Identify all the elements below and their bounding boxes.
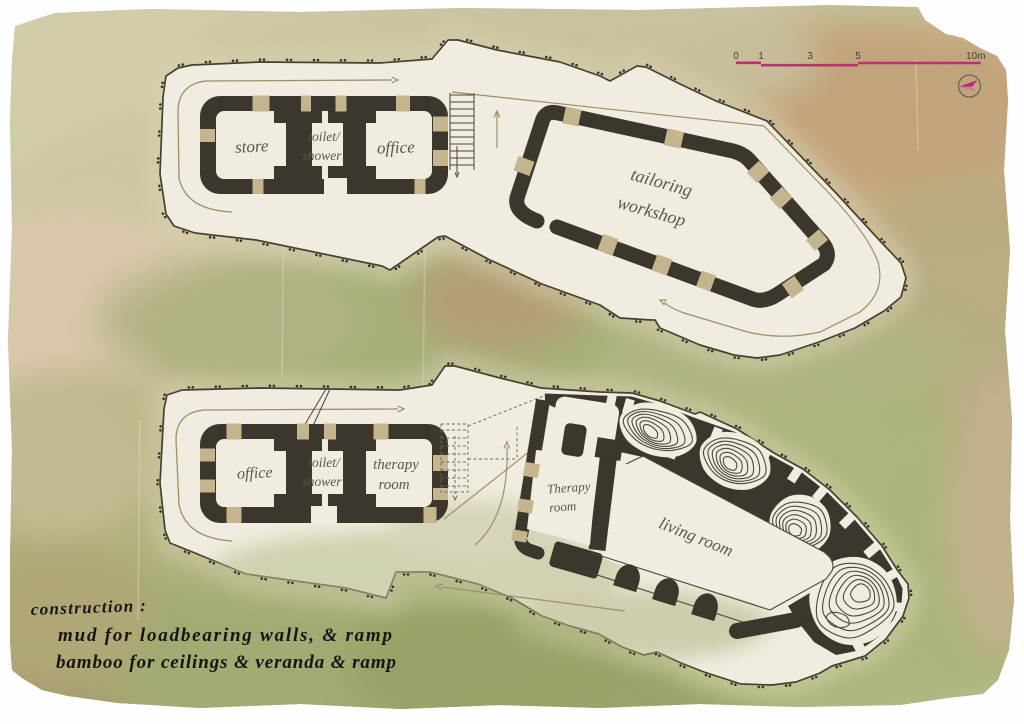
svg-text:toilet/: toilet/ <box>308 129 341 144</box>
svg-text:office: office <box>237 464 273 483</box>
svg-text:shower: shower <box>302 148 342 163</box>
svg-text:shower: shower <box>302 474 342 489</box>
svg-text:room: room <box>549 498 577 515</box>
svg-text:5: 5 <box>855 51 861 62</box>
svg-text:mud for loadbearing walls, & r: mud for loadbearing walls, & ramp <box>58 625 392 646</box>
svg-text:office: office <box>377 137 416 157</box>
svg-text:toilet/: toilet/ <box>308 455 341 470</box>
svg-text:bamboo for ceilings & veranda: bamboo for ceilings & veranda & ramp <box>56 652 396 673</box>
svg-text:1: 1 <box>758 51 764 62</box>
svg-text:Therapy: Therapy <box>547 479 591 497</box>
svg-text:room: room <box>378 477 409 493</box>
svg-text:3: 3 <box>807 51 813 62</box>
svg-text:therapy: therapy <box>373 457 419 473</box>
svg-text:store: store <box>235 136 270 157</box>
svg-text:construction :: construction : <box>30 596 146 619</box>
svg-text:0: 0 <box>733 51 739 62</box>
svg-text:10m: 10m <box>966 51 985 62</box>
